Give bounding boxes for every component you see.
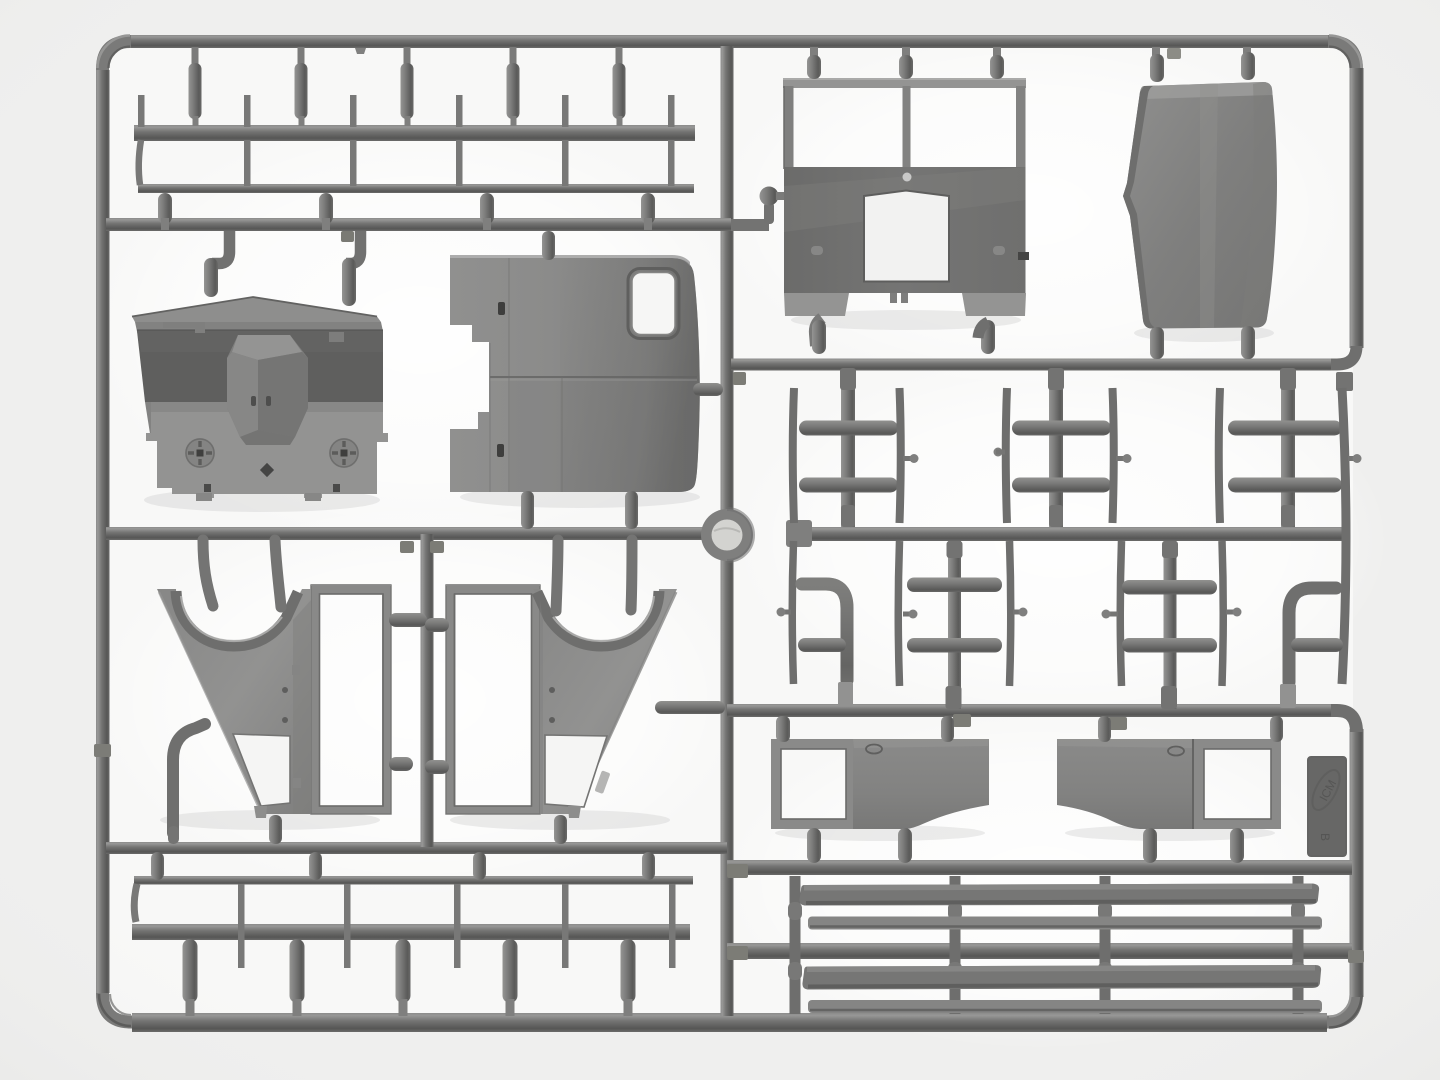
svg-text:B: B	[1318, 833, 1332, 841]
